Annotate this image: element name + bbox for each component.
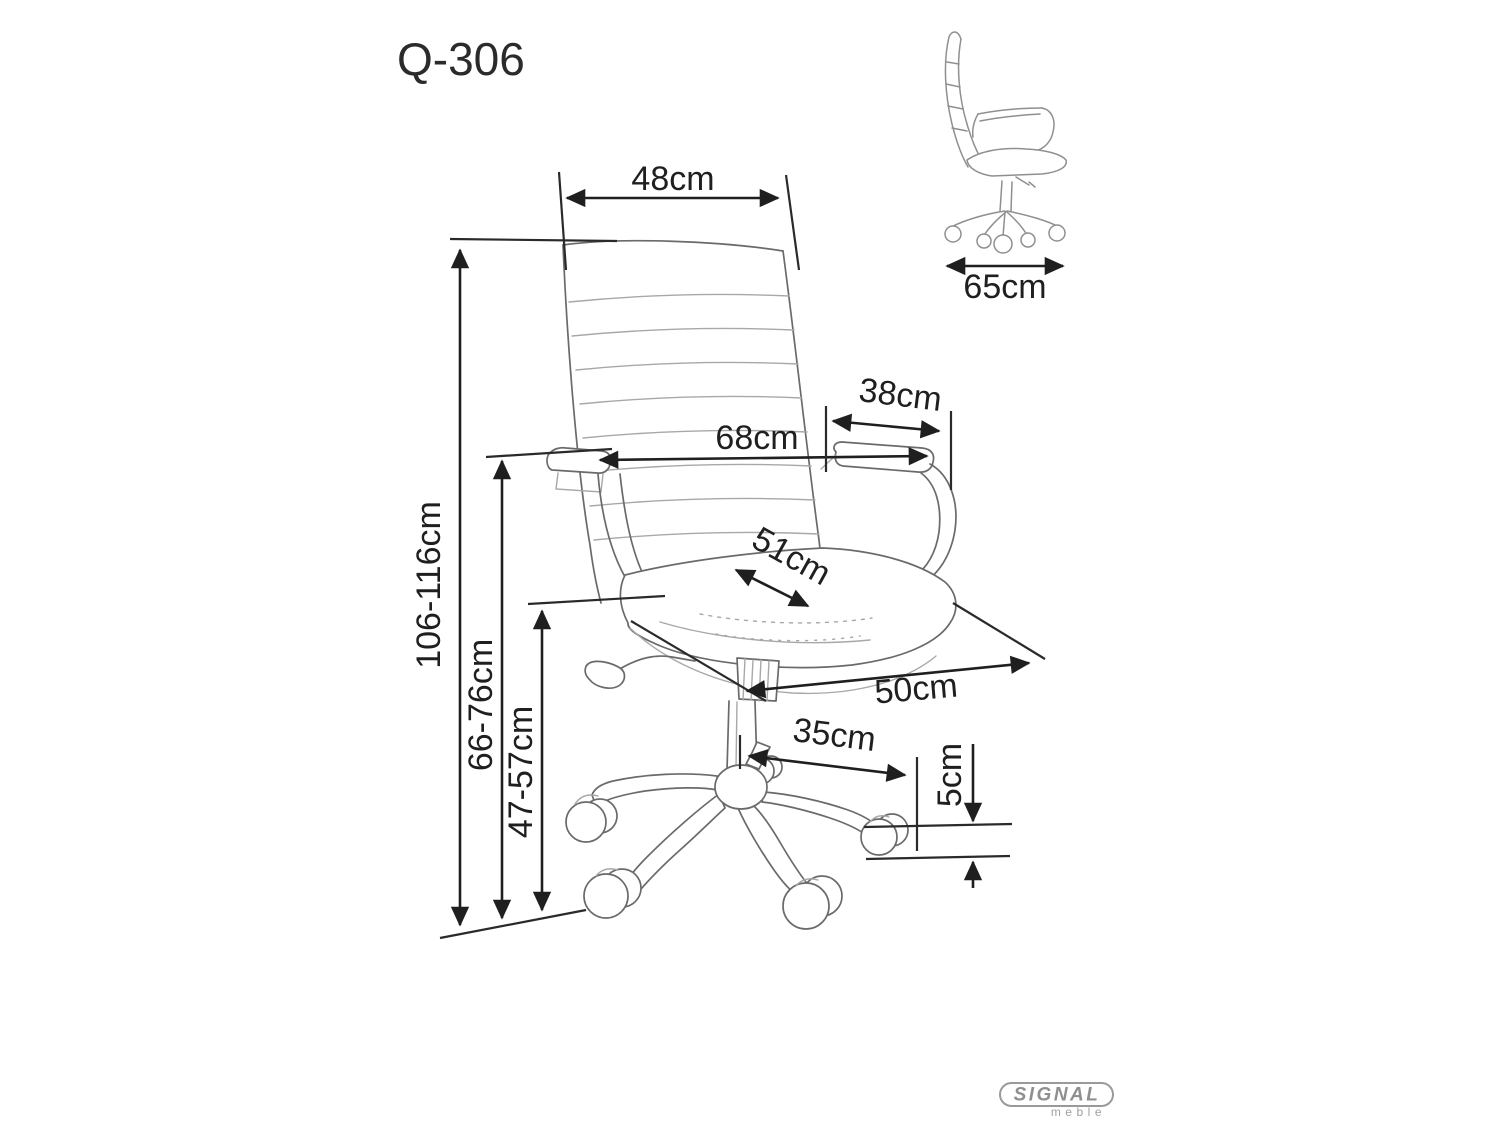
side-backrest-ribs <box>946 62 967 131</box>
logo-brand-text: SIGNAL <box>1014 1085 1101 1106</box>
base-leg <box>592 774 718 806</box>
backrest-rib <box>576 362 798 370</box>
gas-lift-highlight <box>736 702 737 768</box>
lever-paddle <box>585 661 624 688</box>
backrest-top-edge <box>563 241 783 251</box>
left-armrest <box>547 448 642 577</box>
tilt-lever <box>585 656 695 688</box>
technical-drawing: Q-306 <box>0 0 1500 1148</box>
side-backrest-inner <box>959 39 981 159</box>
left-armrest-support-inner <box>620 474 642 572</box>
side-view-chair <box>945 32 1066 253</box>
side-base-legs <box>951 211 1059 236</box>
side-backrest-top <box>949 32 961 39</box>
lever-arm <box>618 656 695 670</box>
side-lever <box>1016 177 1035 187</box>
brand-logo: SIGNAL meble <box>1000 1083 1113 1119</box>
dimension-armrest-length: 38cm <box>826 371 951 490</box>
dim-armrest-length-label: 38cm <box>857 371 944 419</box>
side-backrest-outer <box>945 37 968 167</box>
caster-wheel <box>783 883 829 929</box>
backrest-rib <box>580 396 802 404</box>
extension-line <box>953 603 1045 659</box>
backrest-rib <box>569 294 789 302</box>
side-caster <box>994 235 1012 253</box>
backrest-right-edge <box>783 251 821 561</box>
dim-back-width-label: 48cm <box>631 160 714 198</box>
extension-line <box>559 172 566 270</box>
left-armrest-support-outer <box>598 474 625 577</box>
extension-line <box>786 175 799 270</box>
dim-total-height-label: 106-116cm <box>410 501 448 669</box>
backrest-rib <box>587 464 811 472</box>
base-leg <box>762 792 878 838</box>
caster-wheel <box>566 802 606 842</box>
extension-line <box>450 239 617 241</box>
page-title: Q-306 <box>397 33 525 85</box>
dim-armrest-span-label: 68cm <box>715 419 798 457</box>
side-caster <box>1021 233 1035 247</box>
dim-caster-height-label: 5cm <box>931 743 969 807</box>
base-hub <box>715 765 767 809</box>
dim-armrest-height-label: 66-76cm <box>462 639 500 771</box>
dimension-arrow <box>833 421 939 431</box>
dimension-back-width: 48cm <box>559 160 799 270</box>
side-caster <box>1049 225 1065 241</box>
extension-line <box>866 856 1010 859</box>
base-star <box>592 742 878 895</box>
backrest-rib <box>572 328 794 336</box>
side-seat <box>967 148 1066 176</box>
side-armrest-pad <box>978 108 1042 121</box>
caster-wheel <box>861 819 897 855</box>
left-armrest-bracket <box>556 473 603 492</box>
side-gas-lift <box>1000 181 1012 211</box>
dim-base-leg-reach-label: 35cm <box>791 711 878 759</box>
side-caster <box>977 234 991 248</box>
dim-side-depth-label: 65cm <box>963 268 1046 306</box>
base-leg <box>738 806 809 894</box>
backrest-left-edge <box>563 245 601 603</box>
product-dimension-sheet: Q-306 <box>0 0 1500 1148</box>
floor-line <box>440 910 586 938</box>
logo-sub-text: meble <box>1051 1105 1106 1119</box>
side-armrest-post <box>973 114 978 137</box>
dim-seat-width-label: 50cm <box>873 666 959 711</box>
right-armrest-support-inner <box>913 473 940 578</box>
dim-seat-height-label: 47-57cm <box>502 706 540 838</box>
side-caster <box>945 226 961 242</box>
caster-wheel <box>584 874 628 918</box>
dimension-side-depth: 65cm <box>947 266 1063 306</box>
dimension-armrest-height: 66-76cm <box>462 449 612 918</box>
